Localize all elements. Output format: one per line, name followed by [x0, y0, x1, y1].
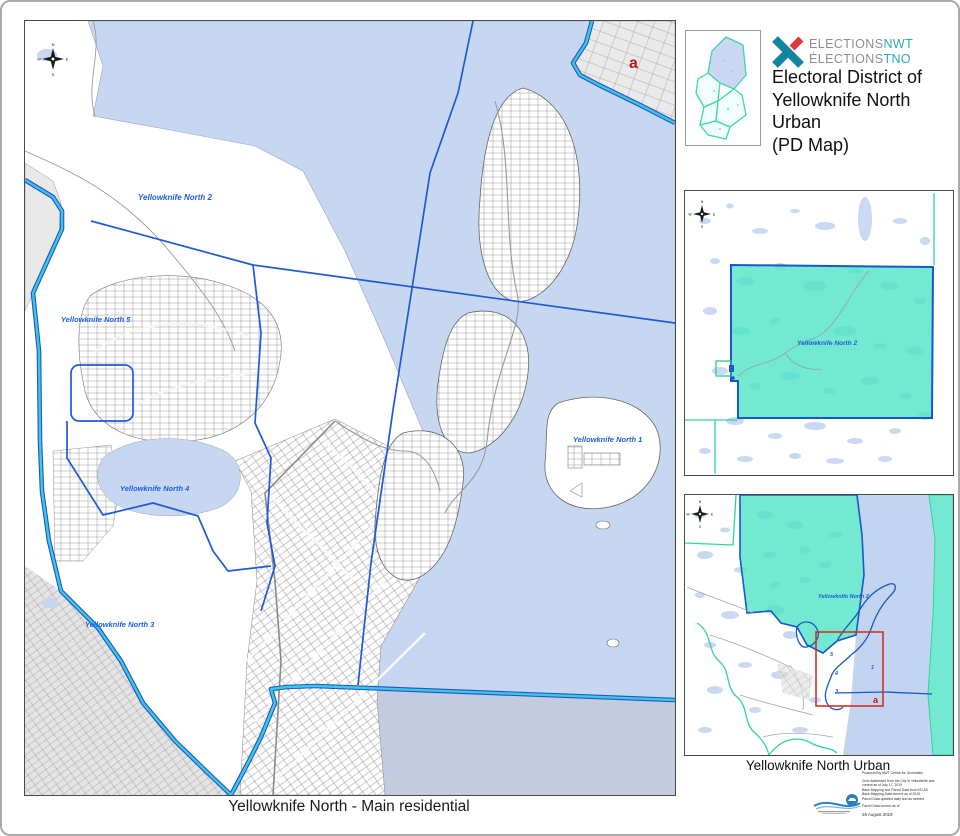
- elections-nwt-logo: [771, 34, 805, 68]
- brand-line-fr: ÉLECTIONSTNO: [809, 52, 913, 67]
- label-yk-north-4: Yellowknife North 4: [120, 484, 190, 493]
- thumbnail-canvas: [686, 31, 760, 145]
- label-yk-north-1: Yellowknife North 1: [573, 435, 642, 444]
- overview-inset-panel: N E S W Yellowknife North 2: [684, 190, 954, 476]
- water-outside-district: [365, 687, 675, 795]
- compass-s: S: [52, 72, 55, 77]
- islet-1: [596, 521, 610, 529]
- document-title: Electoral District of Yellowknife North …: [772, 66, 957, 156]
- credit-line: Produced by NWT Centre for Geomatics: [862, 771, 957, 776]
- brand-fr-teal: TNO: [883, 52, 911, 66]
- map-sheet: N E S W Yellowknife North 2 Yellowknife …: [0, 0, 960, 836]
- credit-line: Parcel Data current as of: [862, 804, 957, 809]
- label-yk-north-3: Yellowknife North 3: [85, 620, 155, 629]
- frame-lake: [98, 439, 241, 516]
- overview-inset-canvas: N E S W Yellowknife North 2: [685, 191, 953, 475]
- brand-en-teal: NWT: [883, 37, 913, 51]
- label-yk-north-2: Yellowknife North 2: [138, 193, 212, 202]
- marker-a-main: a: [629, 55, 638, 72]
- urban-pd-4: 4: [834, 671, 838, 677]
- pond-southwest: [42, 598, 58, 608]
- urban-pd-3: 3: [835, 689, 838, 695]
- district-locator-thumbnail: [685, 30, 761, 146]
- label-yk-north-5: Yellowknife North 5: [61, 315, 131, 324]
- overview-label-yk2: Yellowknife North 2: [797, 340, 857, 347]
- islet-2: [607, 639, 619, 647]
- credit-line: Parcel Data updated daily and as needed: [862, 797, 957, 802]
- main-map-caption: Yellowknife North - Main residential: [24, 798, 674, 816]
- main-map-panel: N E S W Yellowknife North 2 Yellowknife …: [24, 20, 676, 796]
- compass-e: E: [66, 57, 69, 62]
- urban-inset-canvas: N E S W Yellowknife North 2 5 4 1 3 a: [685, 495, 953, 755]
- brand-en-gray: ELECTIONS: [809, 37, 883, 51]
- urban-label-yk2: Yellowknife North 2: [818, 594, 869, 600]
- nwt-government-logo: [812, 793, 862, 815]
- urban-pd-1: 1: [871, 665, 874, 671]
- compass-n: N: [52, 42, 55, 47]
- credits-block: Produced by NWT Centre for Geomatics Civ…: [862, 771, 957, 817]
- brand-wordmark: ELECTIONSNWT ÉLECTIONSTNO: [809, 37, 913, 67]
- brand-line-en: ELECTIONSNWT: [809, 37, 913, 52]
- urban-inset-panel: N E S W Yellowknife North 2 5 4 1 3 a: [684, 494, 954, 756]
- brand-fr-gray: ÉLECTIONS: [809, 52, 883, 66]
- main-map-canvas: N E S W Yellowknife North 2 Yellowknife …: [25, 21, 675, 795]
- compass-w: W: [37, 57, 41, 62]
- map-date: 28 August 2019: [862, 813, 957, 818]
